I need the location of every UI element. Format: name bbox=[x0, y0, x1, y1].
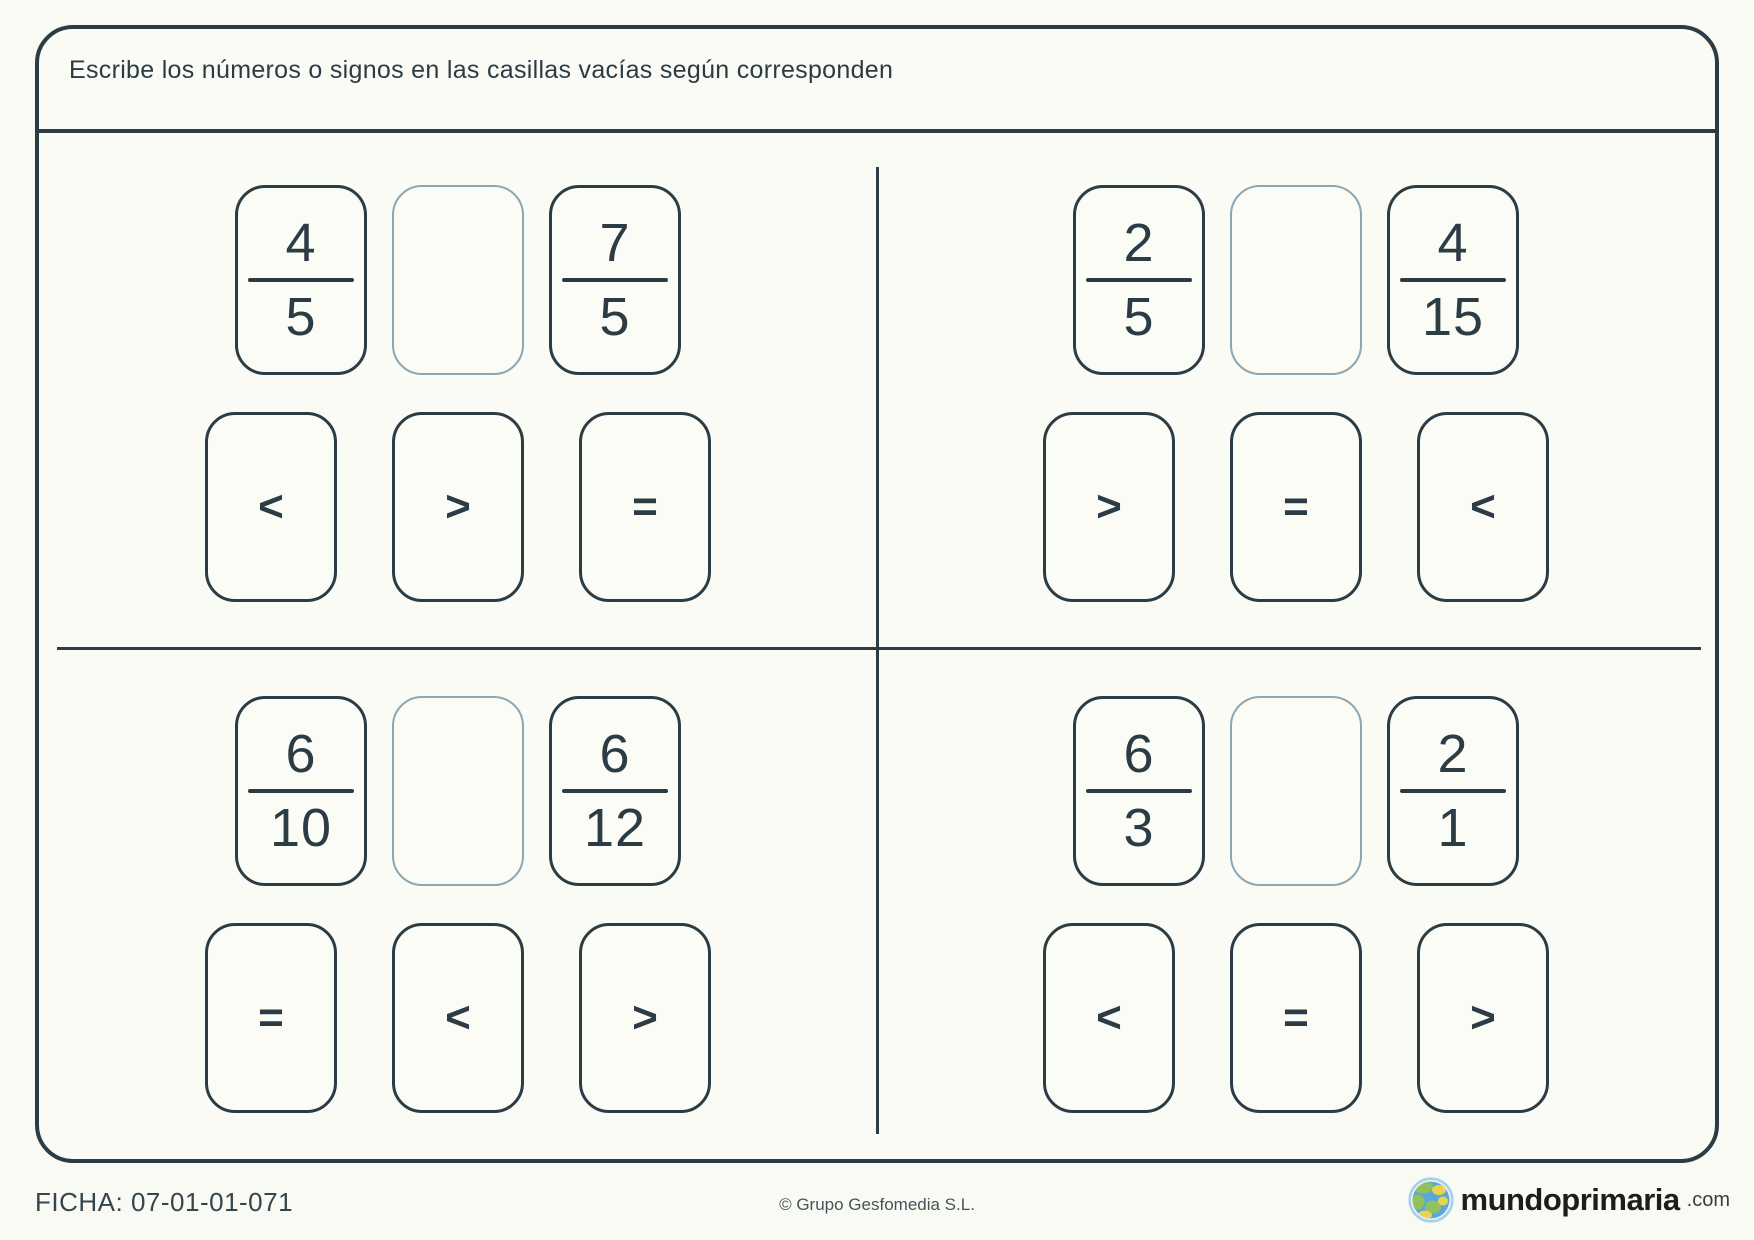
exercise-4: 6 3 2 1 < = > bbox=[877, 648, 1715, 1159]
denominator: 1 bbox=[1437, 801, 1468, 855]
exercise-2: 2 5 4 15 > = < bbox=[877, 137, 1715, 648]
sign-label: = bbox=[632, 485, 658, 529]
fraction-card-right: 7 5 bbox=[549, 185, 681, 375]
logo-name: mundoprimaria bbox=[1461, 1182, 1680, 1218]
fraction-card-right: 2 1 bbox=[1387, 696, 1519, 886]
denominator: 15 bbox=[1422, 290, 1484, 344]
sign-label: = bbox=[258, 996, 284, 1040]
sign-option-card[interactable]: > bbox=[392, 412, 524, 602]
denominator: 12 bbox=[584, 801, 646, 855]
sign-label: < bbox=[258, 485, 284, 529]
sign-label: > bbox=[632, 996, 658, 1040]
horizontal-divider bbox=[57, 647, 1701, 650]
denominator: 10 bbox=[270, 801, 332, 855]
sign-option-card[interactable]: < bbox=[1043, 923, 1175, 1113]
numerator: 6 bbox=[1123, 727, 1154, 781]
mundoprimaria-logo: mundoprimaria .com bbox=[1408, 1177, 1731, 1223]
fraction-card-left: 6 3 bbox=[1073, 696, 1205, 886]
fraction-row: 6 3 2 1 bbox=[1073, 696, 1519, 886]
worksheet-frame: Escribe los números o signos en las casi… bbox=[35, 25, 1719, 1163]
fraction-bar bbox=[1400, 278, 1506, 282]
numerator: 2 bbox=[1437, 727, 1468, 781]
sign-option-card[interactable]: > bbox=[579, 923, 711, 1113]
sign-option-card[interactable]: > bbox=[1043, 412, 1175, 602]
sign-label: = bbox=[1283, 485, 1309, 529]
fraction-card-left: 4 5 bbox=[235, 185, 367, 375]
sign-options-row: < = > bbox=[1043, 923, 1549, 1113]
sign-label: < bbox=[1470, 485, 1496, 529]
fraction-bar bbox=[1086, 278, 1192, 282]
fraction-card-left: 2 5 bbox=[1073, 185, 1205, 375]
sign-option-card[interactable]: = bbox=[1230, 412, 1362, 602]
sign-option-card[interactable]: < bbox=[1417, 412, 1549, 602]
denominator: 5 bbox=[1123, 290, 1154, 344]
answer-box[interactable] bbox=[1230, 696, 1362, 886]
numerator: 4 bbox=[1437, 216, 1468, 270]
globe-icon bbox=[1408, 1177, 1454, 1223]
sign-label: > bbox=[1096, 485, 1122, 529]
numerator: 6 bbox=[599, 727, 630, 781]
copyright-text: © Grupo Gesfomedia S.L. bbox=[779, 1195, 975, 1215]
numerator: 6 bbox=[285, 727, 316, 781]
fraction-card-right: 6 12 bbox=[549, 696, 681, 886]
fraction-row: 4 5 7 5 bbox=[235, 185, 681, 375]
exercise-3: 6 10 6 12 = < > bbox=[39, 648, 877, 1159]
fraction-bar bbox=[1400, 789, 1506, 793]
sign-option-card[interactable]: < bbox=[205, 412, 337, 602]
fraction-row: 2 5 4 15 bbox=[1073, 185, 1519, 375]
sign-options-row: < > = bbox=[205, 412, 711, 602]
answer-box[interactable] bbox=[392, 696, 524, 886]
answer-box[interactable] bbox=[1230, 185, 1362, 375]
sign-options-row: = < > bbox=[205, 923, 711, 1113]
sign-option-card[interactable]: < bbox=[392, 923, 524, 1113]
denominator: 3 bbox=[1123, 801, 1154, 855]
sign-label: > bbox=[1470, 996, 1496, 1040]
fraction-bar bbox=[562, 278, 668, 282]
instruction-header: Escribe los números o signos en las casi… bbox=[39, 29, 1715, 133]
vertical-divider bbox=[876, 167, 879, 1134]
sign-label: = bbox=[1283, 996, 1309, 1040]
fraction-bar bbox=[1086, 789, 1192, 793]
numerator: 2 bbox=[1123, 216, 1154, 270]
sign-label: < bbox=[445, 996, 471, 1040]
fraction-row: 6 10 6 12 bbox=[235, 696, 681, 886]
instruction-text: Escribe los números o signos en las casi… bbox=[69, 56, 893, 85]
answer-box[interactable] bbox=[392, 185, 524, 375]
denominator: 5 bbox=[285, 290, 316, 344]
footer: FICHA: 07-01-01-071 © Grupo Gesfomedia S… bbox=[0, 1163, 1754, 1240]
fraction-bar bbox=[562, 789, 668, 793]
exercise-grid: 4 5 7 5 < > = bbox=[39, 137, 1715, 1159]
sign-option-card[interactable]: = bbox=[579, 412, 711, 602]
sign-label: > bbox=[445, 485, 471, 529]
fraction-card-right: 4 15 bbox=[1387, 185, 1519, 375]
sign-options-row: > = < bbox=[1043, 412, 1549, 602]
denominator: 5 bbox=[599, 290, 630, 344]
numerator: 4 bbox=[285, 216, 316, 270]
sign-label: < bbox=[1096, 996, 1122, 1040]
numerator: 7 bbox=[599, 216, 630, 270]
ficha-number: FICHA: 07-01-01-071 bbox=[35, 1187, 293, 1218]
sign-option-card[interactable]: = bbox=[1230, 923, 1362, 1113]
sign-option-card[interactable]: = bbox=[205, 923, 337, 1113]
exercise-1: 4 5 7 5 < > = bbox=[39, 137, 877, 648]
fraction-bar bbox=[248, 789, 354, 793]
fraction-card-left: 6 10 bbox=[235, 696, 367, 886]
fraction-bar bbox=[248, 278, 354, 282]
logo-tld: .com bbox=[1687, 1189, 1730, 1212]
sign-option-card[interactable]: > bbox=[1417, 923, 1549, 1113]
